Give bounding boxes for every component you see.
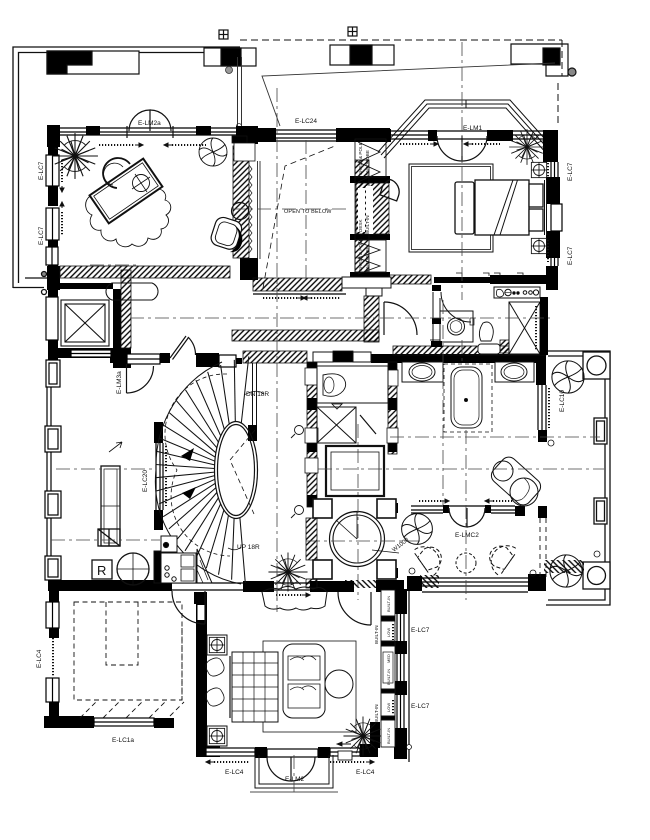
svg-text:E-LC7: E-LC7 — [567, 246, 574, 265]
svg-text:E-LC10: E-LC10 — [559, 390, 566, 412]
svg-text:WARDROBE: WARDROBE — [365, 150, 370, 177]
svg-text:BUILT-IN: BUILT-IN — [386, 669, 391, 685]
svg-text:SHELF & POLE: SHELF & POLE — [358, 142, 363, 175]
svg-text:LOW: LOW — [386, 628, 391, 637]
svg-text:E-LC24: E-LC24 — [295, 118, 317, 125]
svg-text:UP 18R: UP 18R — [237, 544, 260, 551]
svg-text:WARDROBE: WARDROBE — [365, 246, 370, 273]
svg-text:E-LC7: E-LC7 — [38, 226, 45, 245]
svg-text:E-LMC2: E-LMC2 — [455, 532, 479, 539]
svg-text:MED: MED — [386, 654, 391, 663]
svg-text:BUILT-IN: BUILT-IN — [386, 728, 391, 744]
svg-text:SHELF & POLE: SHELF & POLE — [358, 238, 363, 271]
svg-text:E-LC7: E-LC7 — [38, 161, 45, 180]
svg-text:LOW: LOW — [386, 703, 391, 712]
svg-text:BUILT-IN: BUILT-IN — [386, 596, 391, 612]
svg-text:BUILT-IN: BUILT-IN — [374, 625, 379, 644]
svg-text:E-LC20: E-LC20 — [142, 470, 149, 492]
svg-text:E-LC4: E-LC4 — [36, 649, 43, 668]
svg-text:BUILT-IN: BUILT-IN — [374, 704, 379, 723]
svg-text:E-LC7: E-LC7 — [567, 162, 574, 181]
svg-text:E-LC4: E-LC4 — [356, 769, 375, 776]
svg-text:E-LM3a: E-LM3a — [116, 371, 123, 394]
svg-text:DESK: DESK — [358, 219, 363, 232]
svg-text:OPEN TO BELOW: OPEN TO BELOW — [284, 209, 332, 215]
svg-text:E-LM1: E-LM1 — [463, 125, 483, 132]
svg-text:E-LM2a: E-LM2a — [138, 120, 161, 127]
svg-text:R: R — [97, 563, 106, 578]
svg-text:BUILT-IN: BUILT-IN — [365, 215, 370, 234]
svg-text:E-LM2: E-LM2 — [285, 776, 305, 783]
svg-text:E-LC7: E-LC7 — [411, 703, 430, 710]
svg-text:DN 18R: DN 18R — [246, 391, 269, 398]
svg-text:E-LC7: E-LC7 — [411, 627, 430, 634]
svg-text:E-LC4: E-LC4 — [225, 769, 244, 776]
svg-text:E-LC1a: E-LC1a — [112, 737, 134, 744]
